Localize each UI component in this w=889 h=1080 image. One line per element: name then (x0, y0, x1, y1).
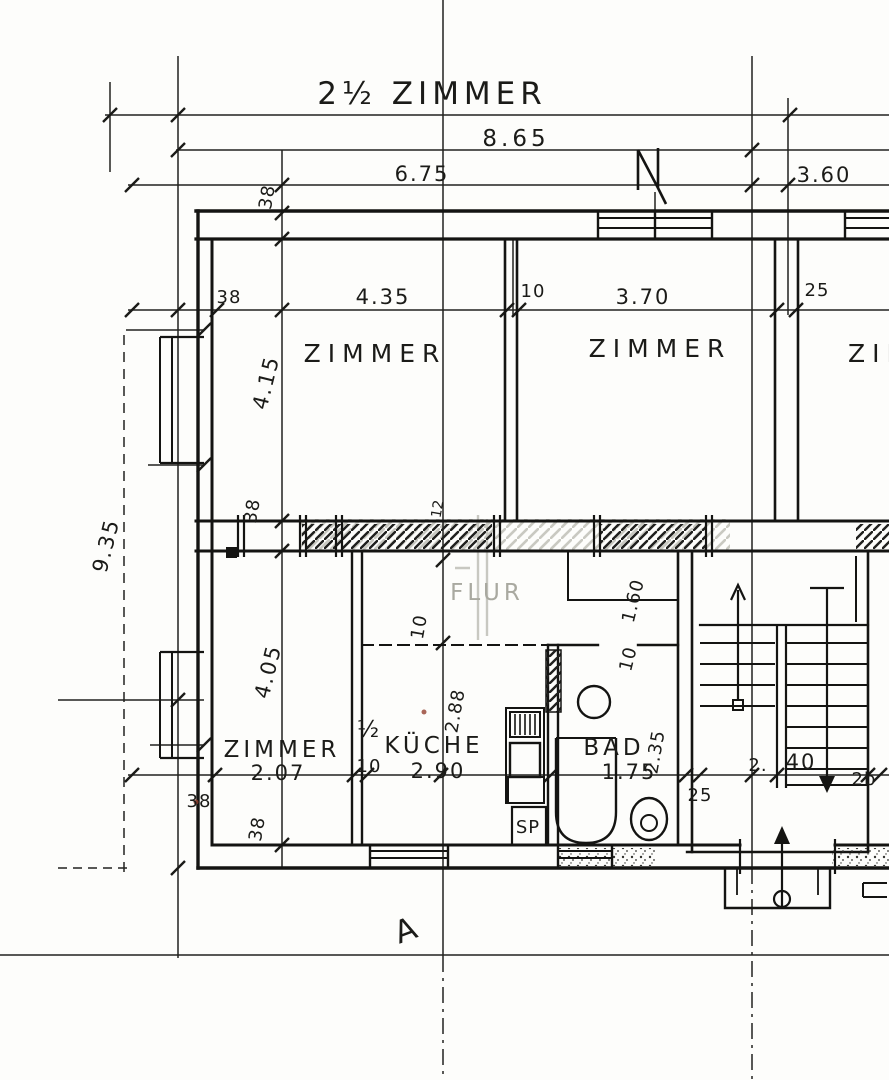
wc-icon (631, 798, 667, 840)
dim-width-left: 6.75 (395, 162, 450, 186)
dim-kueche-width: 2.90 (411, 759, 466, 783)
room-zimmer2: ZIMMER (589, 334, 732, 363)
dim-partition-k: 10 (357, 756, 382, 777)
dim-zimmer1-depth: 4.15 (248, 353, 285, 412)
room-halfzimmer: ZIMMER (224, 737, 341, 763)
dim-zimmer1-width: 4.35 (356, 285, 411, 309)
dim-stair-b: 40 (786, 750, 817, 774)
dim-zimmer2-width: 3.70 (616, 285, 671, 309)
window-right-lower (863, 883, 887, 897)
room-bad: BAD (583, 735, 644, 761)
room-halfzimmer-frac: ½ (357, 717, 383, 743)
dim-wall-left: 38 (217, 287, 242, 308)
dim-wall-top: 38 (255, 183, 280, 211)
room-zimmer1: ZIMMER (304, 339, 447, 368)
dim-total-depth: 9.35 (88, 516, 125, 575)
kitchen-unit (508, 777, 544, 803)
windows (160, 211, 889, 897)
dim-stair-wall: 25 (688, 785, 713, 806)
room-zimmer3: ZIMMER (848, 339, 889, 368)
dim-stair-c: 2b (852, 769, 877, 790)
plan-title: 2½ ZIMMER (317, 76, 547, 112)
floor-plan-page: 2½ ZIMMER 8.65 6.75 3.60 38 38 4.35 10 3… (0, 0, 889, 1080)
dim-flur-wall: 10 (407, 613, 432, 641)
dim-niche-wall: 10 (615, 644, 641, 673)
north-mark (638, 148, 666, 204)
dim-wall-bottom-side: 38 (245, 815, 270, 843)
room-flur: FLUR (450, 580, 524, 606)
section-mark-a: A (390, 909, 427, 952)
dim-kueche-depth: 2.88 (441, 687, 469, 734)
text-labels: 2½ ZIMMER 8.65 6.75 3.60 38 38 4.35 10 3… (88, 76, 889, 951)
dim-wall-z23: 25 (805, 280, 830, 301)
dim-wall-bottom: 38 (187, 791, 212, 812)
dim-wall-mid: 38 (240, 497, 265, 525)
dim-wall-mid-small: 12 (429, 499, 448, 519)
sink-icon (510, 743, 540, 777)
room-kueche: KÜCHE (384, 731, 483, 759)
staircase (700, 556, 868, 793)
window-top-2 (845, 211, 889, 239)
stove-icon (510, 712, 540, 737)
dim-halfzimmer-width: 2.07 (251, 761, 306, 785)
dim-total-width: 8.65 (482, 126, 549, 152)
floor-plan-canvas: 2½ ZIMMER 8.65 6.75 3.60 38 38 4.35 10 3… (0, 0, 889, 1080)
stair-arrow-up (731, 585, 745, 710)
fixture-sp-label: SP (516, 817, 540, 838)
dim-stair-a: 2. (748, 755, 767, 776)
dim-halfzimmer-depth: 4.05 (250, 642, 287, 701)
dim-partition-z12: 10 (521, 281, 546, 302)
window-top-1 (598, 211, 712, 239)
wall-hatching (302, 524, 889, 866)
dimension-ticks (103, 108, 887, 875)
dim-width-right: 3.60 (797, 163, 852, 187)
dim-bad-depth: 2.35 (641, 728, 669, 775)
window-bottom-1 (370, 845, 448, 868)
toilet-icon (578, 686, 610, 718)
